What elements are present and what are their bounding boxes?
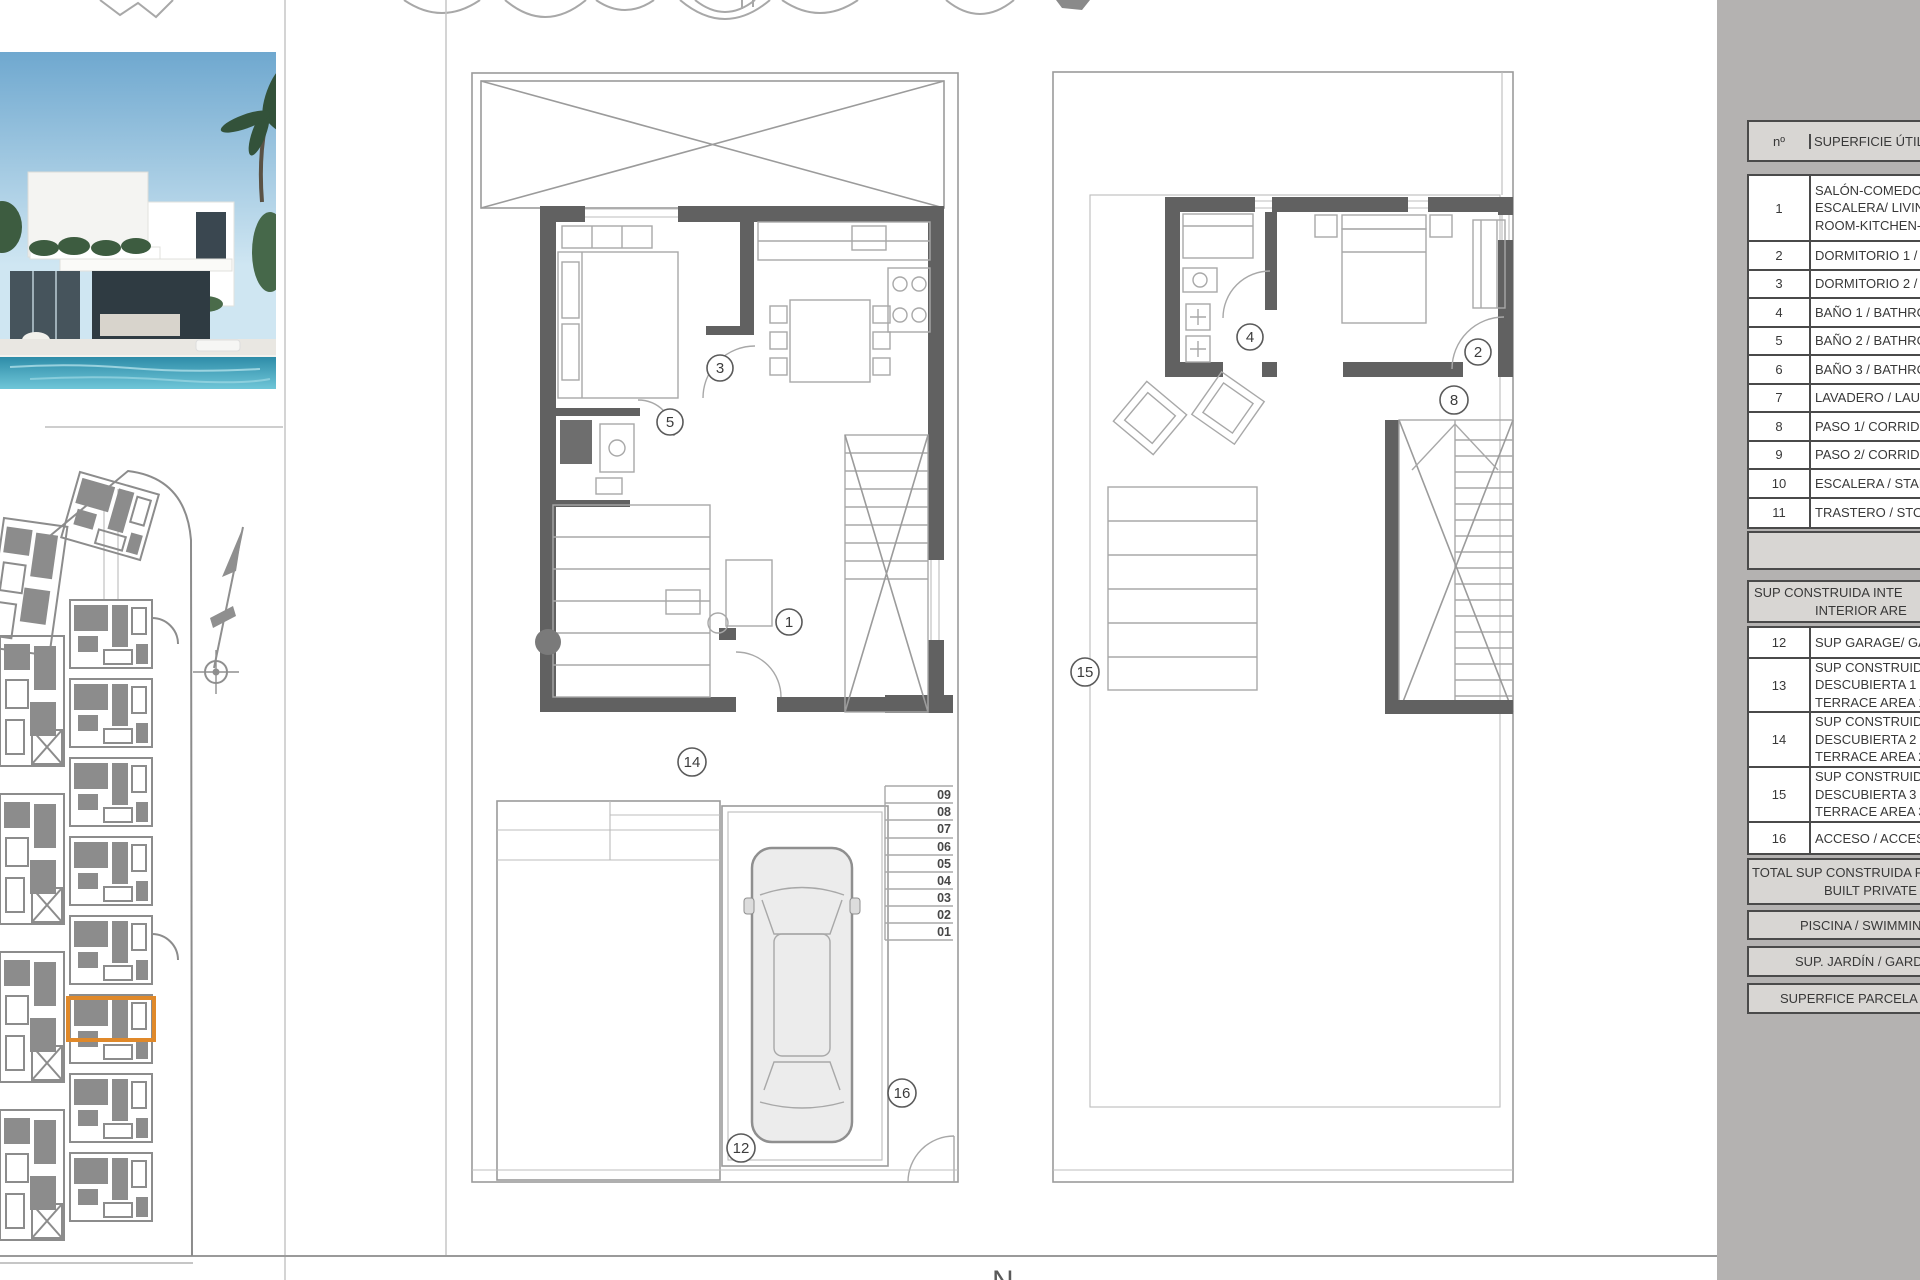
table-row-2: 2DORMITORIO 1 / xyxy=(1749,242,1920,271)
area-summary-sidebar: nº SUPERFICIE ÚTILE 1 SALÓN-COMEDO ESCAL… xyxy=(1717,0,1920,1280)
gate-door-arc xyxy=(908,1136,954,1182)
table-header: nº SUPERFICIE ÚTILE xyxy=(1747,120,1920,162)
first-floor-plan: 4 2 8 15 xyxy=(1053,72,1513,1182)
step-number: 09 xyxy=(937,788,951,802)
table-row-10: 10ESCALERA / STAIR xyxy=(1749,470,1920,499)
svg-text:15: 15 xyxy=(1077,664,1094,681)
svg-text:8: 8 xyxy=(1450,392,1458,409)
window xyxy=(585,209,678,217)
svg-text:3: 3 xyxy=(716,360,724,377)
circled-label-12: 12 xyxy=(727,1134,755,1162)
stairs xyxy=(1385,420,1513,714)
clipped-sheet-title: N xyxy=(992,1265,1014,1280)
table-row-1: 1 SALÓN-COMEDO ESCALERA/ LIVIN ROOM-KITC… xyxy=(1749,176,1920,242)
cantilever-roof xyxy=(60,259,232,271)
built-area-section-header: SUP CONSTRUIDA INTE INTERIOR ARE xyxy=(1747,580,1920,623)
window xyxy=(196,212,226,262)
bed xyxy=(558,252,678,398)
table-row-5: 5BAÑO 2 / BATHRO xyxy=(1749,328,1920,357)
entry-door-arc xyxy=(736,652,781,697)
circled-label-14: 14 xyxy=(678,748,706,776)
svg-text:16: 16 xyxy=(894,1085,911,1102)
car-top-view xyxy=(744,848,860,1142)
bathroom-fixtures xyxy=(560,420,634,494)
table-row-8: 8PASO 1/ CORRIDO xyxy=(1749,413,1920,442)
terrace-chair xyxy=(1113,381,1186,454)
drawing-sheet: N xyxy=(0,0,1920,1280)
row-label: SALÓN-COMEDO ESCALERA/ LIVIN ROOM-KITCHE… xyxy=(1811,176,1920,240)
svg-text:5: 5 xyxy=(666,414,674,431)
total-built-row: TOTAL SUP CONSTRUIDA PR BUILT PRIVATE A xyxy=(1747,858,1920,905)
table-row-4: 4BAÑO 1 / BATHRO xyxy=(1749,299,1920,328)
svg-text:14: 14 xyxy=(684,754,701,771)
svg-text:1: 1 xyxy=(785,614,793,631)
top-edge-fragments xyxy=(100,0,1090,19)
table-row-6: 6BAÑO 3 / BATHRO xyxy=(1749,356,1920,385)
table-row-7: 7LAVADERO / LAU xyxy=(1749,385,1920,414)
header-title: SUPERFICIE ÚTILE xyxy=(1811,134,1920,149)
site-plan xyxy=(0,471,192,1256)
svg-text:12: 12 xyxy=(733,1140,750,1157)
void-cross xyxy=(481,81,944,208)
architectural-plan-sheet: { "sheet": { "bottom_clipped_text": "N" … xyxy=(0,0,1920,1280)
circled-label-2: 2 xyxy=(1465,339,1491,365)
exterior-steps: 09 08 07 06 05 04 03 02 01 xyxy=(885,786,953,940)
table-row-13: 13 SUP CONSTRUIDA DESCUBIERTA 1 / TERRAC… xyxy=(1749,659,1920,713)
door-arc xyxy=(1223,271,1270,318)
circled-label-3: 3 xyxy=(707,355,733,381)
circled-label-15: 15 xyxy=(1071,658,1099,686)
stairs xyxy=(845,435,928,712)
dining-table xyxy=(770,300,890,382)
header-number-col: nº xyxy=(1749,134,1811,149)
table-row-9: 9PASO 2/ CORRIDO xyxy=(1749,442,1920,471)
kitchen xyxy=(758,222,930,332)
table-spacer-band xyxy=(1747,531,1920,570)
pool-row: PISCINA / SWIMMIN xyxy=(1747,910,1920,940)
forecourt xyxy=(497,801,720,1180)
step-number: 04 xyxy=(937,874,951,888)
built-areas-table: 12SUP GARAGE/ GA 13 SUP CONSTRUIDA DESCU… xyxy=(1747,626,1920,855)
circled-label-8: 8 xyxy=(1440,386,1468,414)
table-row-12: 12SUP GARAGE/ GA xyxy=(1749,628,1920,659)
outdoor-sofa xyxy=(100,314,180,336)
svg-text:4: 4 xyxy=(1246,329,1254,346)
villa-photo xyxy=(0,52,276,389)
step-number: 03 xyxy=(937,891,951,905)
plot-row: SUPERFICE PARCELA / xyxy=(1747,983,1920,1014)
step-number: 05 xyxy=(937,857,951,871)
table-row-16: 16ACCESO / ACCESS xyxy=(1749,823,1920,853)
circled-label-16: 16 xyxy=(888,1079,916,1107)
villa-photo-render xyxy=(0,52,276,389)
svg-text:2: 2 xyxy=(1474,344,1482,361)
row-num: 1 xyxy=(1749,176,1811,240)
useful-areas-table: 1 SALÓN-COMEDO ESCALERA/ LIVIN ROOM-KITC… xyxy=(1747,174,1920,529)
living-furniture xyxy=(666,560,772,633)
ground-floor-plan: 09 08 07 06 05 04 03 02 01 3 5 1 14 16 1… xyxy=(472,73,958,1182)
stove xyxy=(888,268,930,332)
column-dot xyxy=(535,629,561,655)
north-arrow-icon xyxy=(193,527,243,694)
sun-lounger xyxy=(196,340,240,351)
louvre-deck xyxy=(1108,487,1257,690)
garden-row: SUP. JARDÍN / GARD xyxy=(1747,946,1920,977)
table-row-11: 11TRASTERO / STOR xyxy=(1749,499,1920,528)
circled-label-1: 1 xyxy=(776,609,802,635)
mirror xyxy=(744,898,754,914)
table-row-3: 3DORMITORIO 2 / xyxy=(1749,271,1920,300)
window xyxy=(931,560,939,640)
bed xyxy=(1315,215,1452,323)
table-row-14: 14 SUP CONSTRUIDA DESCUBIERTA 2 / TERRAC… xyxy=(1749,713,1920,768)
step-number: 02 xyxy=(937,908,951,922)
walls xyxy=(540,206,953,713)
step-number: 01 xyxy=(937,925,951,939)
table-row-15: 15 SUP CONSTRUIDA DESCUBIERTA 3 / TERRAC… xyxy=(1749,768,1920,823)
louvre-deck xyxy=(535,505,710,697)
glass-wall xyxy=(10,271,80,341)
circled-label-4: 4 xyxy=(1237,324,1263,350)
mirror xyxy=(850,898,860,914)
step-number: 07 xyxy=(937,822,951,836)
step-number: 08 xyxy=(937,805,951,819)
wardrobe xyxy=(562,226,652,248)
terrace-chair xyxy=(1192,372,1264,444)
swimming-pool xyxy=(0,357,276,389)
step-number: 06 xyxy=(937,840,951,854)
circled-label-5: 5 xyxy=(657,409,683,435)
